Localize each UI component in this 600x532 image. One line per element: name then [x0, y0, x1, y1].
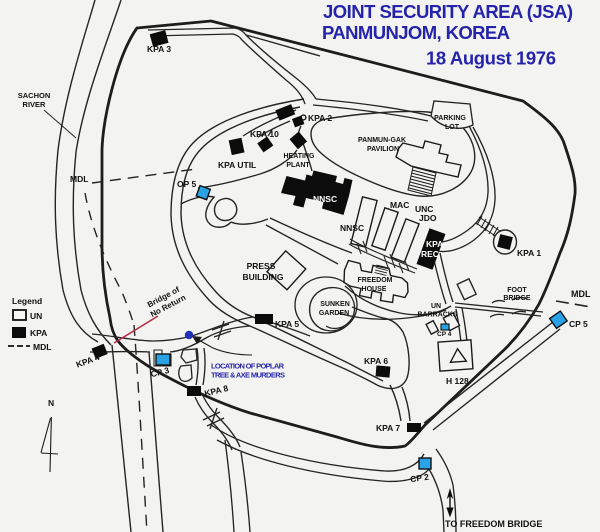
- svg-text:PANMUN-GAK: PANMUN-GAK: [358, 137, 406, 144]
- svg-text:MDL: MDL: [571, 289, 591, 299]
- svg-text:TO FREEDOM BRIDGE: TO FREEDOM BRIDGE: [445, 519, 542, 529]
- svg-text:KPA 7: KPA 7: [376, 423, 400, 433]
- svg-text:CP 5: CP 5: [569, 319, 588, 329]
- svg-text:LOCATION OF POPLAR: LOCATION OF POPLAR: [211, 362, 285, 371]
- svg-text:BUILDING: BUILDING: [242, 272, 283, 282]
- svg-text:KPA: KPA: [426, 239, 443, 249]
- svg-text:KPA 5: KPA 5: [275, 319, 299, 329]
- svg-text:PLANT: PLANT: [286, 162, 310, 169]
- svg-text:PAVILION: PAVILION: [367, 146, 399, 153]
- svg-text:HEATING: HEATING: [284, 153, 316, 160]
- svg-text:UN: UN: [431, 303, 441, 310]
- svg-text:N: N: [48, 398, 54, 408]
- svg-text:KPA 1: KPA 1: [517, 248, 541, 258]
- svg-text:RIVER: RIVER: [23, 100, 47, 109]
- svg-text:MDL: MDL: [70, 174, 88, 184]
- svg-text:UN: UN: [30, 311, 42, 321]
- svg-text:18 August 1976: 18 August 1976: [426, 48, 556, 69]
- svg-text:FREEDOM: FREEDOM: [358, 277, 393, 284]
- svg-text:MDL: MDL: [33, 342, 51, 352]
- svg-text:KPA UTIL: KPA UTIL: [218, 160, 256, 170]
- svg-text:PRESS: PRESS: [247, 261, 276, 271]
- svg-text:LOT: LOT: [445, 124, 460, 131]
- svg-text:KPA 2: KPA 2: [308, 113, 332, 123]
- svg-text:MAC: MAC: [390, 200, 409, 210]
- svg-text:SACHON: SACHON: [18, 91, 51, 100]
- svg-text:PARKING: PARKING: [434, 115, 466, 122]
- svg-text:H 128: H 128: [446, 376, 469, 386]
- svg-text:PANMUNJOM, KOREA: PANMUNJOM, KOREA: [322, 22, 510, 43]
- svg-text:CP 4: CP 4: [437, 331, 452, 338]
- svg-text:FOOT: FOOT: [507, 287, 527, 294]
- svg-text:KPA: KPA: [30, 328, 47, 338]
- svg-text:REC: REC: [421, 249, 439, 259]
- svg-text:NNSC: NNSC: [313, 194, 337, 204]
- svg-text:GARDEN: GARDEN: [319, 310, 349, 317]
- svg-text:OP 5: OP 5: [177, 179, 196, 189]
- svg-text:TREE & AXE MURDERS: TREE & AXE MURDERS: [211, 371, 285, 380]
- svg-text:KPA 10: KPA 10: [250, 129, 279, 139]
- svg-text:KPA 6: KPA 6: [364, 356, 388, 366]
- svg-text:JDO: JDO: [419, 213, 437, 223]
- svg-text:HOUSE: HOUSE: [362, 286, 387, 293]
- svg-text:KPA 3: KPA 3: [147, 44, 171, 54]
- svg-text:BRIDGE: BRIDGE: [503, 295, 531, 302]
- svg-text:JOINT SECURITY AREA (JSA): JOINT SECURITY AREA (JSA): [323, 1, 573, 22]
- svg-text:NNSC: NNSC: [340, 223, 364, 233]
- svg-text:SUNKEN: SUNKEN: [320, 301, 350, 308]
- svg-text:BARRACKS: BARRACKS: [417, 312, 457, 319]
- svg-text:Legend: Legend: [12, 296, 42, 306]
